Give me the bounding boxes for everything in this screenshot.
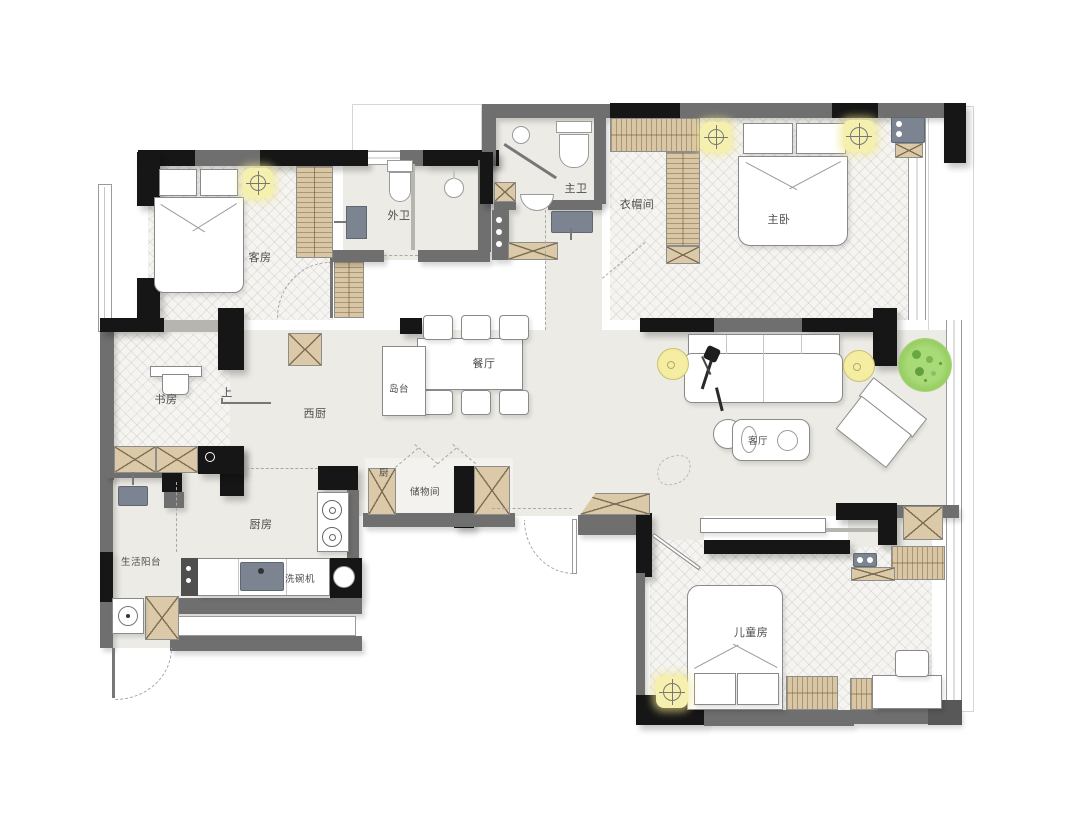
room-label-kitchen: 厨房 xyxy=(250,516,273,532)
sofa-seam xyxy=(763,335,764,354)
basin-stem xyxy=(453,170,455,179)
kids-desk xyxy=(872,675,942,709)
wall xyxy=(100,318,114,480)
bay-window-mullion xyxy=(104,187,105,329)
pillow xyxy=(159,169,197,196)
wall xyxy=(164,492,184,508)
balcony-door-arc xyxy=(115,648,172,700)
cabinet-master-corner xyxy=(895,143,923,158)
counter-dot xyxy=(896,121,902,127)
room-label-walk-in-closet: 衣帽间 xyxy=(620,196,655,212)
cabinet-closet-end xyxy=(666,246,700,264)
dining-chair xyxy=(423,390,453,415)
cabinet-hall xyxy=(508,242,558,260)
wall xyxy=(260,150,368,166)
room-label-dining-room: 餐厅 xyxy=(473,355,496,371)
kitchen-sink xyxy=(240,562,284,591)
door-arrow xyxy=(334,221,346,223)
wall xyxy=(636,513,652,577)
mop-sink xyxy=(118,486,148,506)
kids-chair xyxy=(895,650,929,677)
wall xyxy=(836,503,880,520)
dining-chair xyxy=(499,315,529,340)
washbasin-icon xyxy=(444,178,464,198)
cabinet-west-kitchen xyxy=(114,446,156,473)
wall xyxy=(363,513,515,527)
wall xyxy=(496,104,610,118)
room-label-utility-balcony: 生活阳台 xyxy=(121,554,161,568)
counter-sink-unit xyxy=(198,446,244,474)
room-label-master-bedroom: 主卧 xyxy=(768,211,791,227)
pillow xyxy=(200,169,238,196)
wall xyxy=(594,116,606,204)
wall xyxy=(400,318,422,334)
wall xyxy=(195,150,260,166)
faucet-icon xyxy=(258,568,264,574)
room-label-kids-room: 儿童房 xyxy=(734,624,769,640)
wall xyxy=(330,250,384,262)
room-label-guest-bathroom: 外卫 xyxy=(388,207,411,223)
cabinet-kids-bottom xyxy=(786,676,838,710)
bed-guest xyxy=(154,197,244,293)
toilet-bowl xyxy=(559,134,589,168)
wall xyxy=(878,103,946,118)
wall xyxy=(100,552,113,604)
entry-dash xyxy=(492,508,572,509)
arrow-line xyxy=(132,472,134,485)
cabinet-west-kitchen xyxy=(156,446,198,473)
label-kitchen-cabinet: 厨 xyxy=(379,465,389,479)
appliance-tower xyxy=(181,558,198,596)
tv-console xyxy=(700,518,826,533)
wall-sill xyxy=(164,320,220,332)
counter-dot xyxy=(857,557,863,563)
shaft-dot xyxy=(496,229,502,235)
door-opening-dash xyxy=(384,255,418,256)
wall xyxy=(680,103,832,118)
bed-master xyxy=(738,156,848,246)
vanity-sink xyxy=(551,211,593,233)
dining-chair xyxy=(499,390,529,415)
ceiling-light-icon xyxy=(843,120,875,152)
floor-transition-dash xyxy=(545,210,546,330)
wall-partition xyxy=(411,164,415,250)
wall xyxy=(714,318,802,332)
shower-head-icon xyxy=(512,126,530,144)
step-line xyxy=(221,402,271,404)
exterior-ledge xyxy=(178,616,356,636)
sink-ring xyxy=(205,452,215,462)
wall xyxy=(418,250,490,262)
dining-chair xyxy=(461,315,491,340)
wall xyxy=(480,152,493,204)
wall xyxy=(704,540,850,554)
pillow xyxy=(694,673,736,705)
toilet-bowl xyxy=(389,172,411,202)
wall xyxy=(170,636,362,651)
washer-dot xyxy=(126,614,130,618)
door-leaf xyxy=(330,262,333,318)
sliding-door-panel xyxy=(346,206,367,239)
wall xyxy=(944,103,966,163)
pillow xyxy=(737,673,779,705)
label-step-up: 上 xyxy=(221,384,233,400)
sofa-seam xyxy=(726,335,727,354)
burner-center xyxy=(329,507,336,514)
exterior-ledge xyxy=(352,104,482,151)
room-label-guest-room: 客房 xyxy=(249,249,272,265)
wall xyxy=(878,503,897,545)
cabinet-guest-wardrobe xyxy=(296,166,333,258)
floor-plan: 客房 外卫 主卫 衣帽间 主卧 餐厅 岛台 书房 上 西厨 客厅 厨 储物间 厨… xyxy=(0,0,1080,825)
room-label-west-kitchen: 西厨 xyxy=(304,405,327,421)
wall xyxy=(832,103,878,118)
wall xyxy=(802,318,884,332)
floor-pouf xyxy=(843,350,875,382)
light-ring-icon xyxy=(708,129,724,145)
cabinet-hall-wardrobe xyxy=(334,256,364,318)
sofa-seam xyxy=(801,335,802,354)
room-label-study: 书房 xyxy=(155,391,178,407)
wall xyxy=(100,318,164,332)
room-label-island: 岛台 xyxy=(389,381,409,395)
cabinet-balcony xyxy=(145,596,179,640)
wall xyxy=(636,573,645,697)
light-ring-icon xyxy=(850,127,868,145)
label-dishwasher: 洗碗机 xyxy=(285,571,315,585)
dining-chair xyxy=(461,390,491,415)
wall xyxy=(548,200,602,210)
dining-table xyxy=(417,338,523,390)
counter-dot xyxy=(867,557,873,563)
sofa-seam xyxy=(763,354,764,402)
wall xyxy=(578,515,638,535)
dining-chair xyxy=(423,315,453,340)
toilet-tank xyxy=(556,121,592,133)
toilet-tank xyxy=(387,160,413,172)
counter-dot xyxy=(896,131,902,137)
balcony-divider-dash xyxy=(176,482,177,552)
wall xyxy=(218,308,244,370)
console-shelf xyxy=(826,528,878,532)
cabinet-dining-wall xyxy=(288,333,322,366)
cabinet-niche xyxy=(903,506,943,540)
kitchen-opening-dash xyxy=(246,468,318,469)
shaft-dot xyxy=(496,241,502,247)
faucet-line xyxy=(570,228,572,240)
wall xyxy=(704,710,854,726)
wall xyxy=(100,478,113,554)
appliance-dot xyxy=(186,566,191,571)
counter-divider xyxy=(238,559,239,595)
ceiling-light-icon xyxy=(656,676,688,708)
wall xyxy=(610,103,680,118)
room-label-living-room: 客厅 xyxy=(748,433,768,447)
wall xyxy=(318,466,358,490)
entry-door-arc xyxy=(524,520,574,574)
floor-pouf xyxy=(657,348,689,380)
room-label-storage: 储物间 xyxy=(410,484,440,498)
corner-unit xyxy=(333,566,355,588)
cabinet-kids-top xyxy=(891,546,945,580)
cabinet-kids-strip xyxy=(851,567,895,581)
ceiling-light-icon xyxy=(243,168,273,198)
light-ring-icon xyxy=(663,683,681,701)
ceiling-light-icon xyxy=(701,122,731,152)
bay-window xyxy=(98,184,112,332)
room-label-master-bathroom: 主卫 xyxy=(565,180,588,196)
burner-center xyxy=(329,534,336,541)
wall xyxy=(170,598,362,614)
pillow xyxy=(796,123,846,154)
wall xyxy=(640,318,714,332)
wall xyxy=(873,308,897,366)
pillow xyxy=(743,123,793,154)
light-ring-icon xyxy=(250,175,266,191)
tray-circle xyxy=(777,430,798,451)
plant-icon xyxy=(898,338,952,392)
shaft-dot xyxy=(496,217,502,223)
cabinet-bath xyxy=(494,182,516,202)
cabinet-closet-top xyxy=(610,118,700,152)
cabinet-closet-column xyxy=(666,152,700,246)
appliance-dot xyxy=(186,578,191,583)
